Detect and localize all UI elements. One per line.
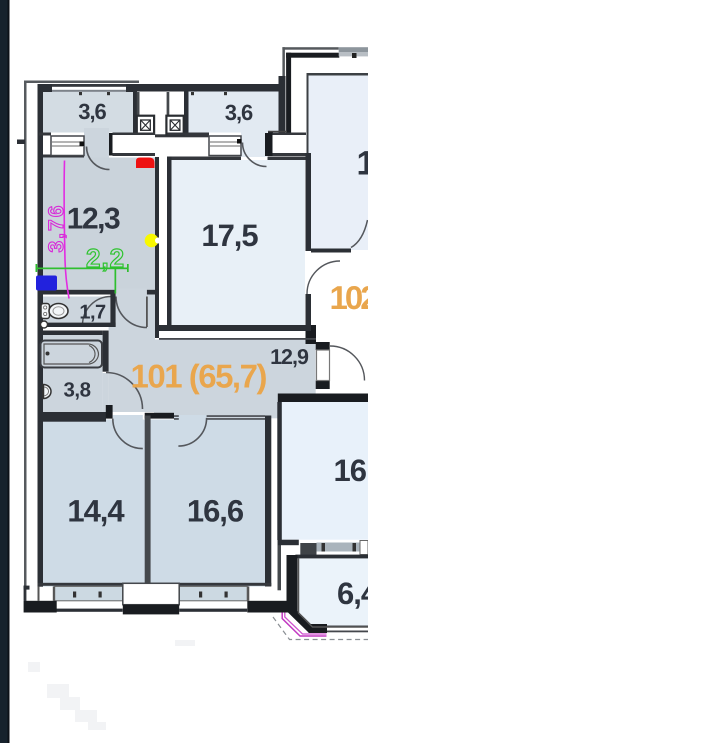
svg-text:101 (65,7): 101 (65,7) [131, 358, 267, 395]
svg-text:3,8: 3,8 [64, 379, 91, 402]
svg-text:12,9: 12,9 [270, 345, 309, 369]
svg-text:14,4: 14,4 [67, 494, 125, 529]
svg-text:16,6: 16,6 [187, 494, 244, 529]
svg-text:17,5: 17,5 [201, 218, 258, 253]
svg-text:2,2: 2,2 [86, 243, 125, 273]
svg-text:3,6: 3,6 [78, 99, 106, 124]
svg-text:12,3: 12,3 [67, 203, 120, 236]
svg-text:3,76: 3,76 [45, 204, 68, 253]
svg-text:1,7: 1,7 [79, 302, 106, 324]
svg-text:3,6: 3,6 [225, 100, 253, 125]
